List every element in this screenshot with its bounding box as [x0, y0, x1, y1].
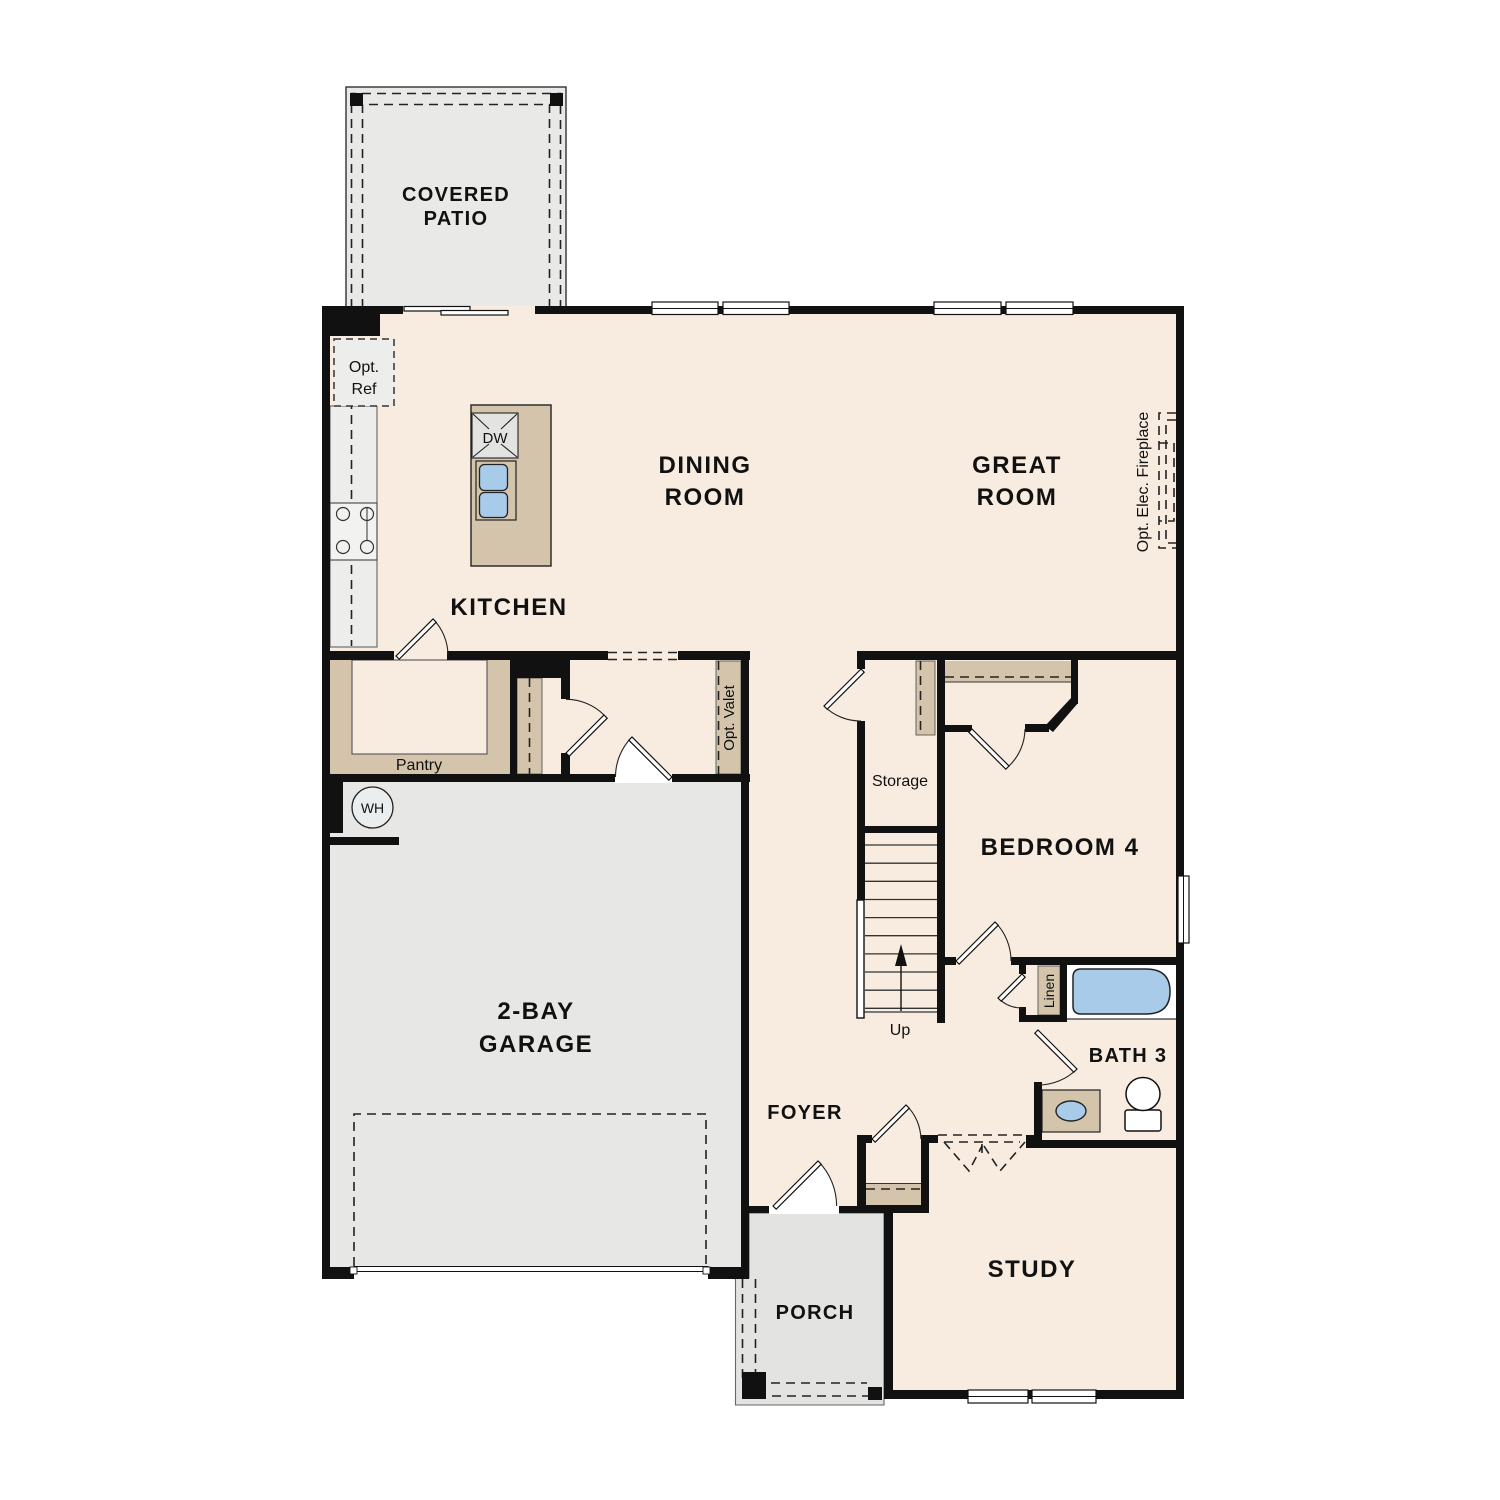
- svg-text:ROOM: ROOM: [665, 484, 746, 511]
- svg-text:Opt.: Opt.: [349, 359, 379, 376]
- svg-text:Storage: Storage: [872, 773, 928, 790]
- svg-text:STUDY: STUDY: [988, 1256, 1077, 1283]
- svg-text:Linen: Linen: [1041, 974, 1057, 1008]
- svg-text:Ref: Ref: [352, 381, 377, 398]
- svg-text:Opt. Valet: Opt. Valet: [721, 684, 738, 750]
- svg-text:COVERED: COVERED: [402, 184, 510, 206]
- svg-text:PORCH: PORCH: [776, 1302, 855, 1324]
- svg-text:BATH 3: BATH 3: [1089, 1045, 1168, 1067]
- svg-text:ROOM: ROOM: [977, 484, 1058, 511]
- svg-text:DINING: DINING: [659, 452, 752, 479]
- svg-text:Pantry: Pantry: [396, 757, 442, 774]
- svg-text:FOYER: FOYER: [767, 1102, 842, 1124]
- svg-text:DW: DW: [483, 430, 509, 447]
- svg-text:PATIO: PATIO: [424, 208, 489, 230]
- svg-text:KITCHEN: KITCHEN: [450, 594, 567, 621]
- svg-text:GREAT: GREAT: [972, 452, 1062, 479]
- svg-text:GARAGE: GARAGE: [479, 1031, 593, 1058]
- svg-text:BEDROOM 4: BEDROOM 4: [981, 834, 1140, 861]
- svg-text:WH: WH: [361, 800, 384, 816]
- svg-text:Up: Up: [890, 1022, 911, 1039]
- svg-text:Opt. Elec. Fireplace: Opt. Elec. Fireplace: [1135, 412, 1152, 553]
- svg-text:2-BAY: 2-BAY: [497, 998, 574, 1025]
